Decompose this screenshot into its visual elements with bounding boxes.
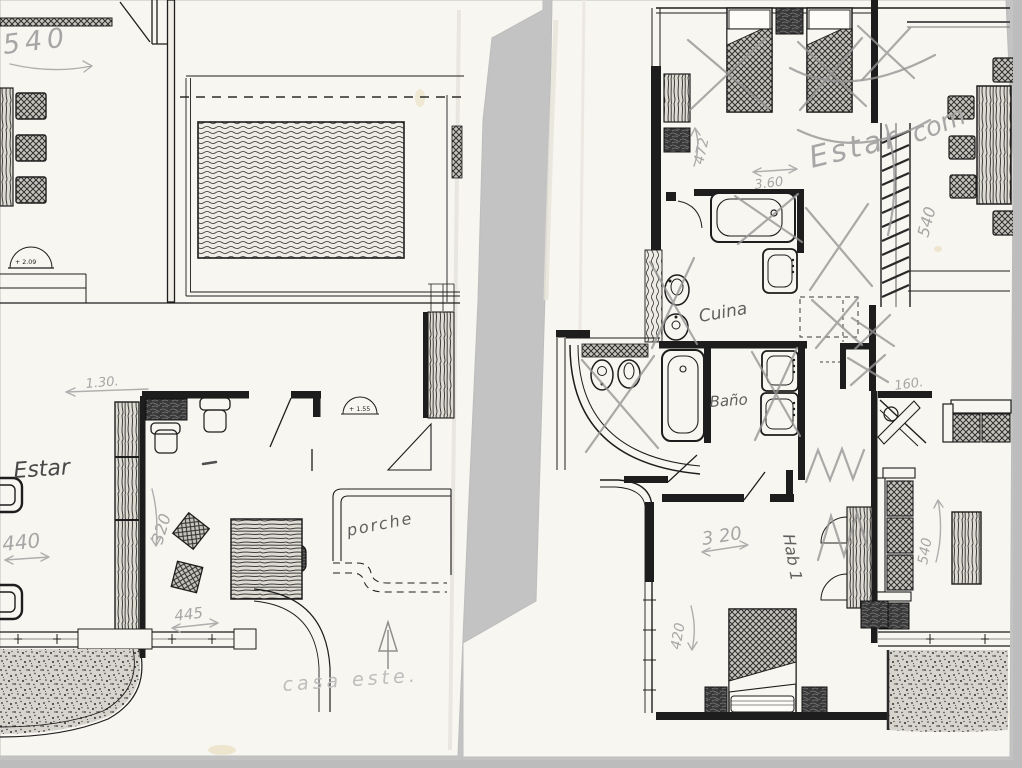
wardrobe: [428, 312, 454, 418]
loveseat: [943, 400, 1011, 442]
wall: [656, 712, 888, 720]
wall: [797, 189, 804, 253]
sofa: [875, 468, 915, 601]
level-label: + 1.55: [349, 406, 370, 413]
sofa: [115, 402, 139, 658]
chair: [949, 136, 975, 159]
coffee-table: [952, 512, 981, 584]
sink: [763, 249, 797, 293]
wall: [645, 502, 654, 582]
bidet: [618, 360, 640, 388]
chair: [950, 175, 976, 198]
rug: [198, 122, 404, 258]
plumbing-wall: [645, 250, 662, 342]
nightstand: [802, 687, 827, 713]
wall: [662, 494, 744, 502]
nightstand: [705, 687, 727, 715]
wall: [140, 396, 146, 658]
wall-pier: [78, 629, 152, 649]
scanner-background-strip: [1013, 0, 1022, 768]
dim-130-annotation: 1.30.: [85, 374, 119, 392]
bed: [727, 8, 772, 112]
paper-stain: [934, 246, 942, 252]
paper-stain: [208, 745, 236, 755]
wall-section: [582, 344, 648, 357]
ottoman: [171, 561, 203, 593]
door-jamb: [666, 192, 676, 201]
level-label: + 2.09: [15, 259, 36, 266]
wall: [659, 341, 807, 349]
toilet: [665, 275, 689, 305]
wall-pier: [234, 629, 256, 649]
bed: [807, 8, 852, 112]
chair: [16, 135, 46, 161]
nightstand: [776, 8, 803, 34]
dim-440-annotation: 440: [1, 528, 41, 556]
wall: [786, 470, 793, 496]
wall: [313, 391, 321, 417]
dresser: [664, 74, 690, 122]
wall: [142, 391, 249, 399]
coffee-table: [231, 519, 302, 599]
wall: [556, 330, 590, 338]
dim-445-annotation: 445: [173, 604, 204, 625]
paper-stain: [415, 89, 425, 107]
sideboard: [0, 88, 13, 206]
chair: [16, 93, 46, 119]
estar-annotation: Estar: [13, 455, 73, 484]
bathtub: [711, 193, 795, 242]
chair: [16, 177, 46, 203]
right-sheet: 472 3.60 Estar com 540 Cuina Baño 160. 5…: [463, 0, 1019, 757]
terrace: [888, 650, 1008, 732]
dining-table: [977, 86, 1011, 204]
scanned-floorplan-pages: + 2.09 + 1.55: [0, 0, 1022, 768]
wall: [840, 349, 846, 389]
bathtub-vertical: [662, 350, 704, 441]
desk: [146, 399, 187, 420]
wall: [871, 0, 878, 123]
banyo-annotation: Baño: [709, 390, 748, 411]
left-sheet: + 2.09 + 1.55: [0, 0, 543, 756]
scanner-background-strip: [0, 760, 1022, 768]
wall-section: [452, 126, 462, 178]
bidet: [664, 314, 688, 340]
cabinet: [861, 601, 888, 628]
cabinet: [664, 128, 690, 152]
wall: [651, 66, 661, 258]
wall: [798, 345, 805, 480]
double-bed: [729, 609, 796, 715]
wall: [168, 0, 175, 302]
